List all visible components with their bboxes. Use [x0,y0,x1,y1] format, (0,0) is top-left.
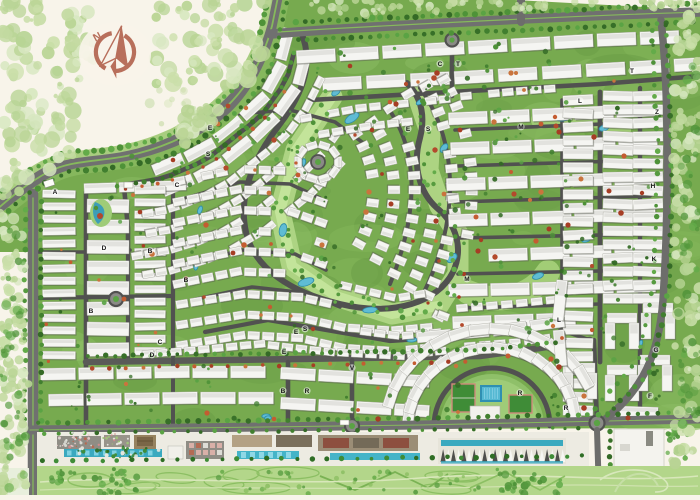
svg-text:Z: Z [655,109,659,116]
svg-text:M: M [464,276,469,283]
svg-text:B: B [184,277,189,284]
svg-text:C: C [438,61,443,68]
svg-text:S: S [303,326,308,333]
svg-text:S: S [426,126,431,133]
svg-text:E: E [282,349,287,356]
svg-text:K: K [652,256,657,263]
svg-text:T: T [456,61,460,68]
svg-text:R: R [564,405,569,412]
svg-text:S: S [206,151,211,158]
svg-text:D: D [150,352,155,359]
svg-text:L: L [578,98,582,105]
svg-text:M: M [518,124,523,131]
svg-text:R: R [305,388,310,395]
svg-text:B: B [281,388,286,395]
svg-text:E: E [208,125,213,132]
svg-text:H: H [651,183,656,190]
svg-text:G: G [653,347,658,354]
svg-text:F: F [648,393,652,400]
svg-text:E: E [294,329,299,336]
svg-text:R: R [518,390,523,397]
svg-text:T: T [630,68,634,75]
svg-text:B: B [148,248,153,255]
svg-text:C: C [175,182,180,189]
svg-text:E: E [406,126,411,133]
svg-text:D: D [102,245,107,252]
svg-text:V: V [350,365,355,372]
svg-text:C: C [158,339,163,346]
svg-text:A: A [53,189,58,196]
svg-text:L: L [557,317,561,324]
svg-text:B: B [89,308,94,315]
